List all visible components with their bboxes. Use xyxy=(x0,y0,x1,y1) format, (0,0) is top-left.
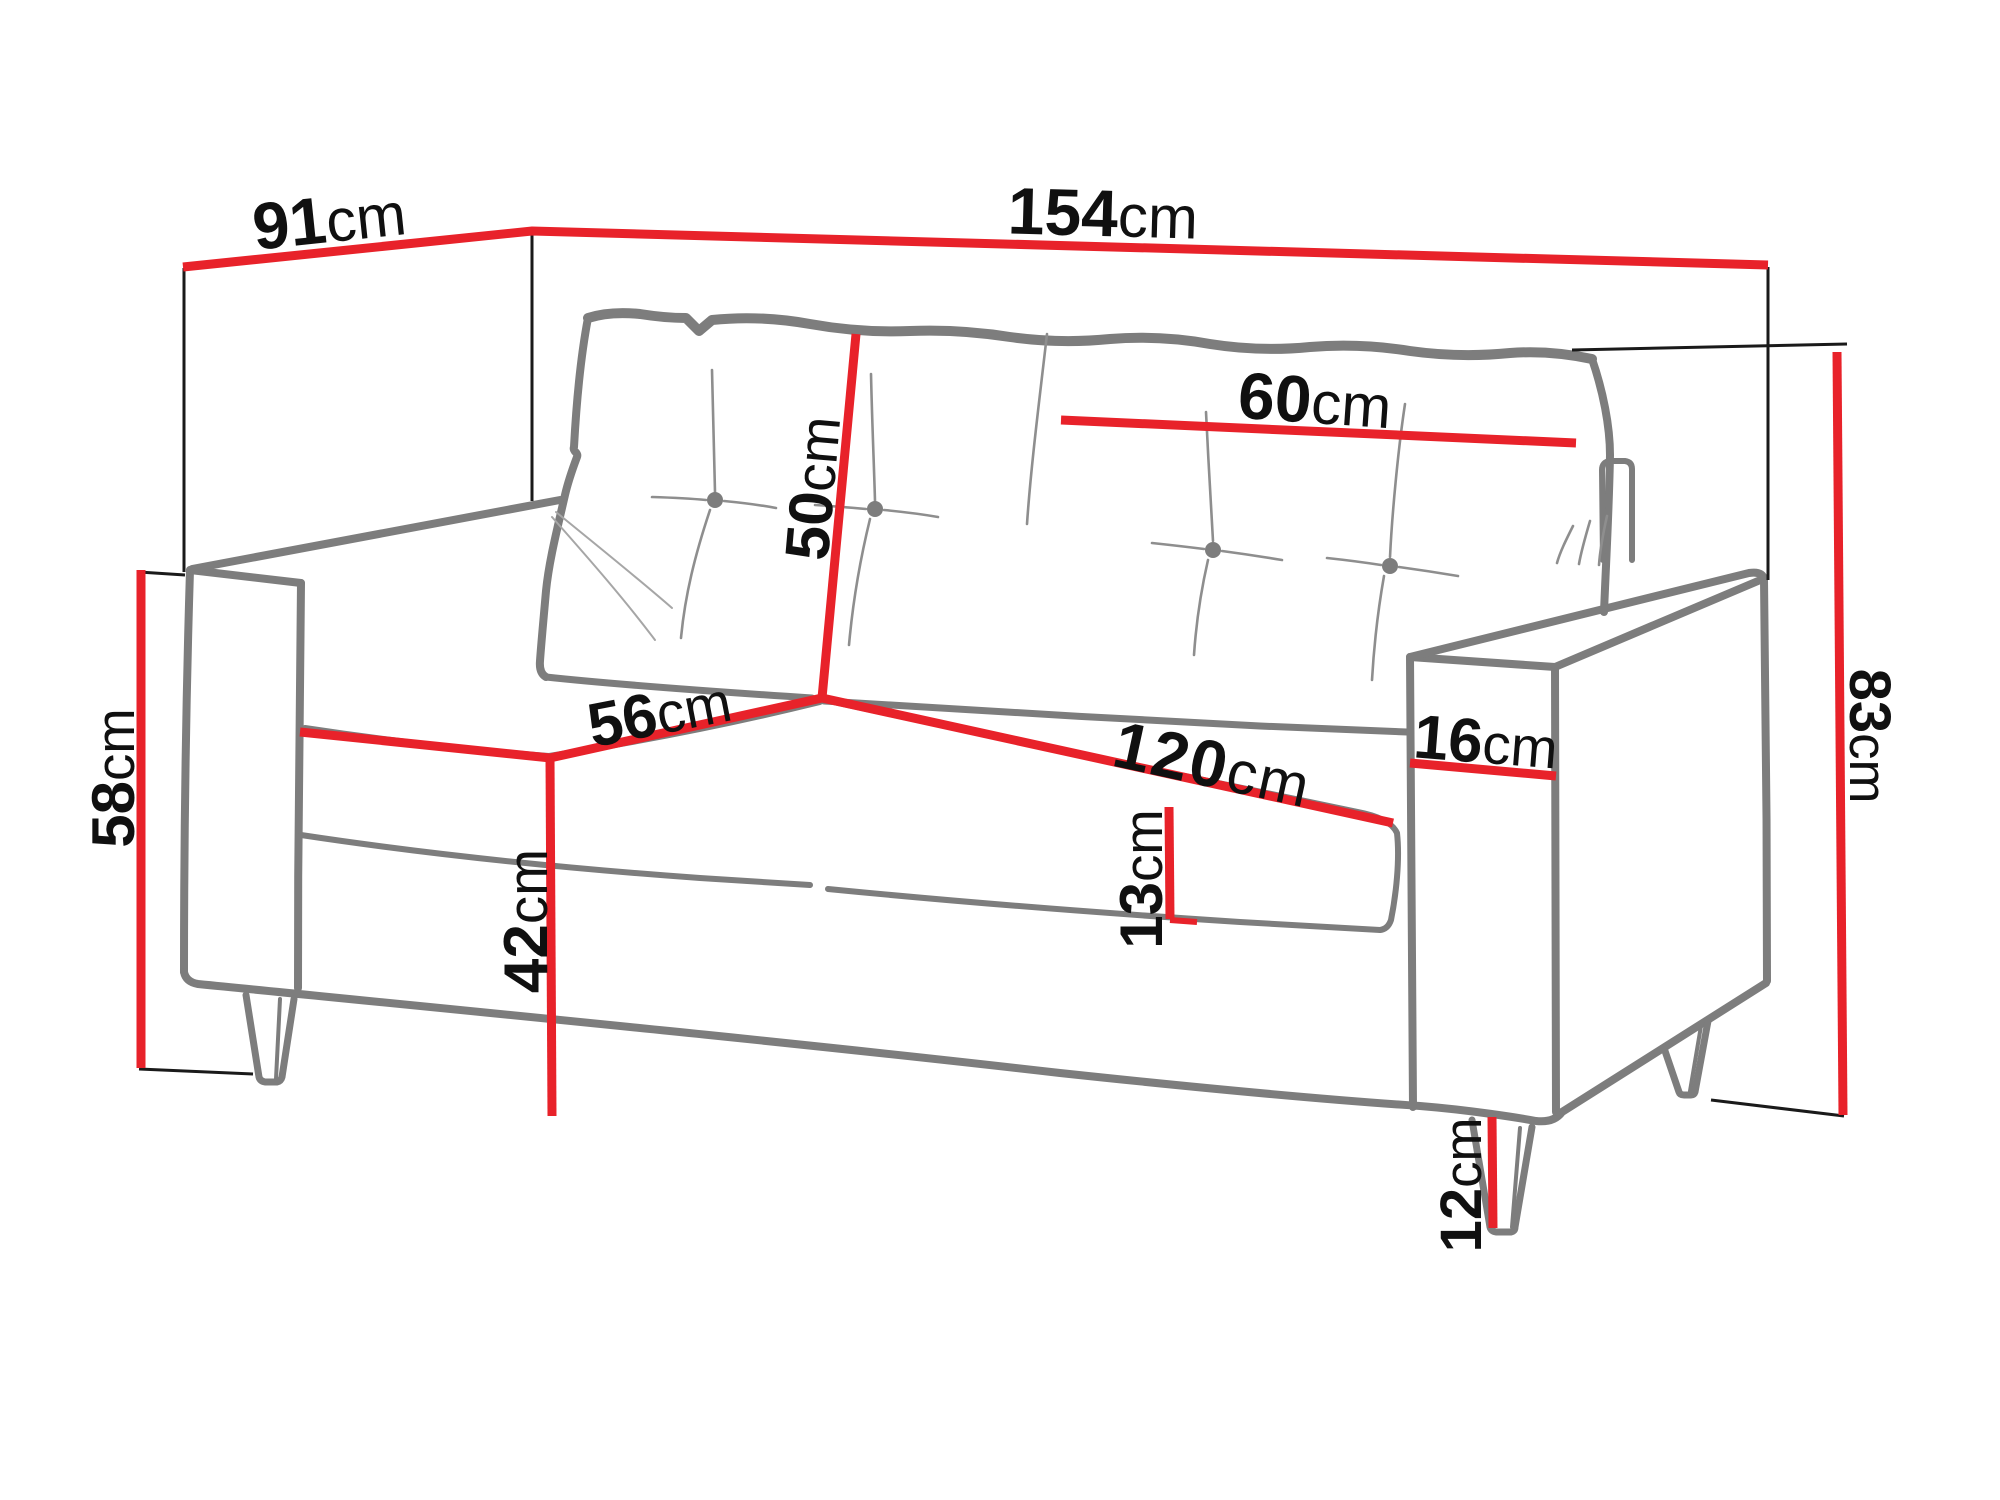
svg-text:154cm: 154cm xyxy=(1007,173,1199,252)
svg-text:13cm: 13cm xyxy=(1108,809,1175,949)
svg-text:83cm: 83cm xyxy=(1837,669,1902,804)
svg-text:58cm: 58cm xyxy=(80,708,147,848)
svg-text:12cm: 12cm xyxy=(1429,1118,1494,1253)
svg-text:42cm: 42cm xyxy=(492,849,561,993)
